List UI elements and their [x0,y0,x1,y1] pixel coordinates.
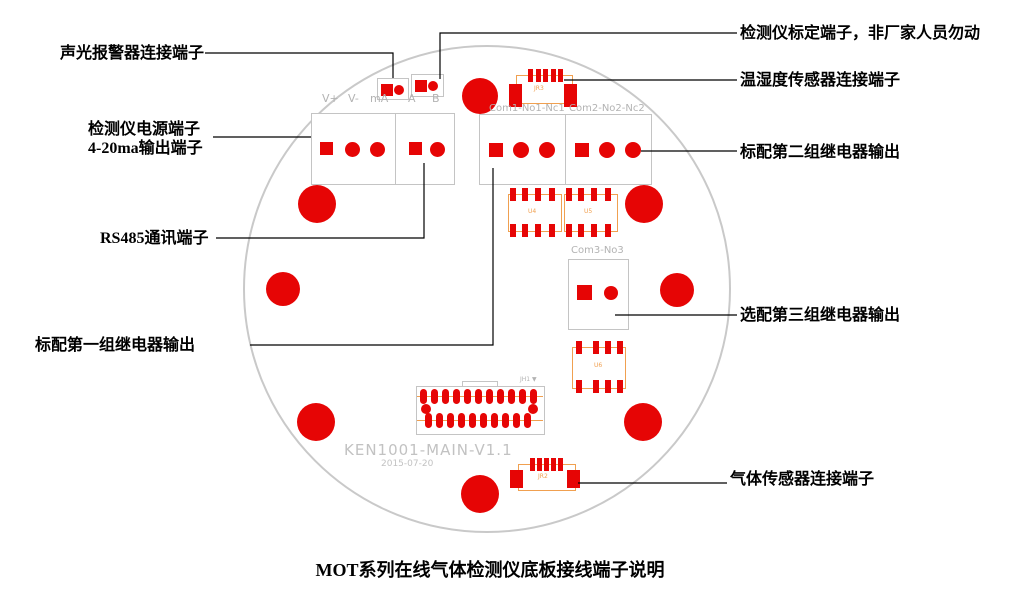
u4-pad [535,224,541,237]
u4-pad [522,224,528,237]
callout-temp-humidity: 温湿度传感器连接端子 [740,71,900,90]
power-pad [345,142,360,157]
calibration-connector-pad [428,81,438,91]
jh1-pad [469,413,476,428]
mounting-hole [625,185,663,223]
callout-alarm: 声光报警器连接端子 [60,44,204,63]
mounting-hole [266,272,300,306]
relay2-pad [599,142,615,158]
mounting-hole [624,403,662,441]
u5-pad [605,224,611,237]
callout-relay1: 标配第一组继电器输出 [35,336,195,355]
jr3-pad [543,69,548,82]
jr2-pad [558,458,563,471]
jh1-pad [420,389,427,404]
board-date: 2015-07-20 [381,459,433,469]
jh1-pad [486,389,493,404]
jh1-hole [421,404,431,414]
silk-vminus: V- [348,92,359,105]
jh1-pad [502,413,509,428]
alarm-connector-pad [394,85,404,95]
u5-pad [578,224,584,237]
jh1-pad [431,389,438,404]
mounting-hole [297,403,335,441]
u5-pad [566,188,572,201]
u4-pad [510,224,516,237]
callout-relay2: 标配第二组继电器输出 [740,143,900,162]
jr2-label: JR2 [538,473,548,480]
u4-pad [510,188,516,201]
jh1-pad [513,413,520,428]
u6-pad [576,341,582,354]
u5-label: U5 [584,208,592,215]
jh1-pad [447,413,454,428]
silk-a: A [408,92,416,105]
jr3-pad [528,69,533,82]
relay2-pad [625,142,641,158]
jh1-pad [497,389,504,404]
relay1-pad [539,142,555,158]
jh1-pad [464,389,471,404]
jr3-pad [536,69,541,82]
rs485-pad [409,142,422,155]
jh1-pad [530,389,537,404]
u4-pad [522,188,528,201]
jh1-pad [453,389,460,404]
u5-pad [605,188,611,201]
jr3-pad [551,69,556,82]
u4-pad [535,188,541,201]
callout-power-line1: 检测仪电源端子 [88,120,203,139]
board-name: KEN1001-MAIN-V1.1 [344,441,513,459]
u6-pad [617,380,623,393]
callout-gas-sensor: 气体传感器连接端子 [730,470,874,489]
u4-pad [549,224,555,237]
silk-com3: Com3-No3 [571,245,624,256]
jh1-pad [480,413,487,428]
silk-b: B [432,92,440,105]
u6-pad [605,341,611,354]
jr2-pad [544,458,549,471]
pcb-diagram: JR3 V+ V- mA A B Com1-No1-Nc1 Com2-No2-N… [0,0,1028,608]
u5-pad [591,224,597,237]
silk-ma: mA [370,92,388,105]
mounting-hole [461,475,499,513]
callout-power-line2: 4-20ma输出端子 [88,139,203,158]
u4-pad [549,188,555,201]
jr2-pad [530,458,535,471]
relay2-pad [575,143,589,157]
u5-pad [578,188,584,201]
jh1-pad [442,389,449,404]
u6-pad [593,380,599,393]
jh1-pad [436,413,443,428]
jh1-pad [491,413,498,428]
jr2-end-pad [510,470,523,488]
jh1-pad [508,389,515,404]
jr3-label: JR3 [534,85,544,92]
power-pad [320,142,333,155]
callout-calibration: 检测仪标定端子，非厂家人员勿动 [740,24,980,43]
relay3-pad [604,286,618,300]
jh1-pad [475,389,482,404]
rs485-terminal-block [395,113,455,185]
u4-label: U4 [528,208,536,215]
jh1-pad [425,413,432,428]
silk-com2: Com2-No2-Nc2 [569,103,645,114]
jh1-label: JH1 ▼ [520,376,537,383]
relay1-pad [489,143,503,157]
u6-pad [593,341,599,354]
diagram-caption: MOT系列在线气体检测仪底板接线端子说明 [316,556,665,582]
relay1-pad [513,142,529,158]
mounting-hole [298,185,336,223]
u6-pad [617,341,623,354]
jh1-hole [528,404,538,414]
jr2-pad [537,458,542,471]
jr2-end-pad [567,470,580,488]
u5-pad [591,188,597,201]
u6-label: U6 [594,362,602,369]
callout-relay3: 选配第三组继电器输出 [740,306,900,325]
jh1-pad [519,389,526,404]
rs485-pad [430,142,445,157]
calibration-connector-pad [415,80,427,92]
mounting-hole [660,273,694,307]
power-pad [370,142,385,157]
callout-power: 检测仪电源端子 4-20ma输出端子 [88,120,203,158]
silk-vplus: V+ [322,92,339,105]
jr2-pad [551,458,556,471]
u6-pad [576,380,582,393]
u5-pad [566,224,572,237]
jh1-pad [524,413,531,428]
jh1-pad [458,413,465,428]
jr3-pad [558,69,563,82]
relay3-pad [577,285,592,300]
u6-pad [605,380,611,393]
callout-rs485: RS485通讯端子 [100,229,208,248]
silk-com1: Com1-No1-Nc1 [489,103,565,114]
